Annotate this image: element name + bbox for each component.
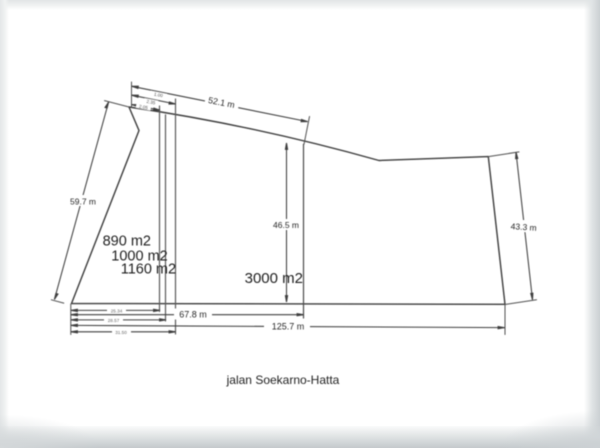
- svg-text:jalan Soekarno-Hatta: jalan Soekarno-Hatta: [226, 373, 340, 387]
- svg-text:31.50: 31.50: [115, 330, 127, 335]
- svg-text:890 m2: 890 m2: [103, 234, 151, 250]
- svg-text:1.00: 1.00: [154, 92, 164, 99]
- svg-text:3000 m2: 3000 m2: [245, 270, 303, 287]
- svg-text:2.05: 2.05: [139, 104, 149, 111]
- svg-text:1160 m2: 1160 m2: [121, 262, 176, 278]
- svg-text:28.57: 28.57: [108, 318, 120, 323]
- svg-text:67.8 m: 67.8 m: [179, 310, 207, 320]
- svg-text:46.5 m: 46.5 m: [273, 220, 299, 230]
- svg-text:25.34: 25.34: [111, 309, 123, 314]
- svg-text:43.3 m: 43.3 m: [510, 221, 537, 233]
- svg-text:59.7 m: 59.7 m: [70, 197, 96, 207]
- svg-text:125.7 m: 125.7 m: [272, 322, 305, 332]
